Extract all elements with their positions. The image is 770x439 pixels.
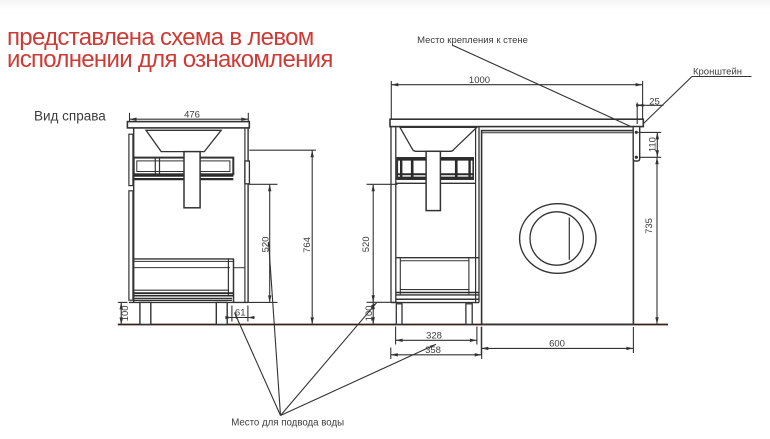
svg-text:328: 328 xyxy=(426,331,442,342)
svg-text:100: 100 xyxy=(364,305,375,321)
svg-text:520: 520 xyxy=(361,236,372,252)
svg-text:735: 735 xyxy=(644,218,655,234)
svg-text:764: 764 xyxy=(302,237,313,253)
svg-text:476: 476 xyxy=(184,109,200,120)
svg-text:25: 25 xyxy=(649,96,660,107)
svg-text:Вид справа: Вид справа xyxy=(34,109,106,124)
svg-text:110: 110 xyxy=(647,137,658,152)
svg-text:Место крепления к стене: Место крепления к стене xyxy=(417,35,528,46)
svg-text:358: 358 xyxy=(425,345,441,356)
svg-text:520: 520 xyxy=(260,237,271,253)
svg-text:Место для подвода воды: Место для подвода воды xyxy=(231,417,344,428)
svg-text:100: 100 xyxy=(120,305,131,321)
svg-text:1000: 1000 xyxy=(469,75,490,86)
svg-text:600: 600 xyxy=(549,339,565,350)
svg-text:Кронштейн: Кронштейн xyxy=(693,67,742,78)
